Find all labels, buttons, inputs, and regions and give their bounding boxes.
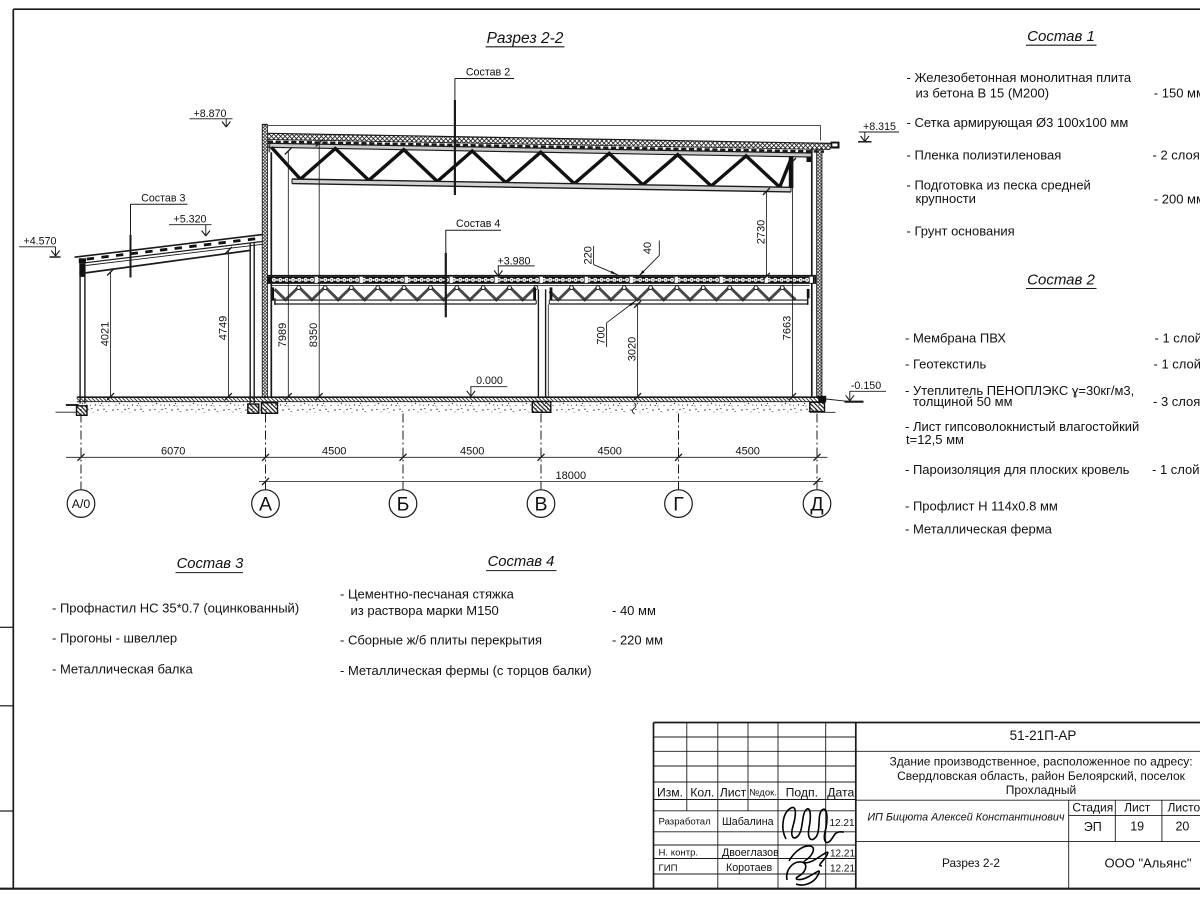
svg-text:Разработал: Разработал — [659, 817, 711, 828]
svg-text:ИП Бицюта Алексей Константинов: ИП Бицюта Алексей Константинович — [867, 812, 1065, 824]
svg-text:- Металлическая балка: - Металлическая балка — [52, 661, 193, 676]
svg-text:толщиной 50 мм: толщиной 50 мм — [913, 394, 1013, 409]
svg-text:- 1 слой: - 1 слой — [1155, 331, 1200, 346]
svg-text:- Профнастил НС 35*0.7 (оцинко: - Профнастил НС 35*0.7 (оцинкованный) — [52, 601, 299, 616]
svg-text:2730: 2730 — [755, 220, 767, 244]
svg-text:Подп.: Подп. — [786, 786, 818, 800]
svg-text:Лист: Лист — [1124, 801, 1151, 815]
svg-text:Состав 3: Состав 3 — [177, 556, 245, 572]
svg-text:18000: 18000 — [556, 470, 587, 482]
svg-text:4500: 4500 — [735, 446, 759, 458]
svg-text:20: 20 — [1175, 820, 1189, 834]
svg-text:t=12,5 мм: t=12,5 мм — [906, 432, 964, 447]
svg-text:- 1 слой: - 1 слой — [1152, 462, 1200, 477]
svg-text:Шабалина: Шабалина — [722, 816, 774, 828]
svg-text:- 2 слоя: - 2 слоя — [1153, 148, 1200, 163]
svg-text:Коротаев: Коротаев — [726, 862, 772, 874]
svg-text:Двоеглазов: Двоеглазов — [722, 847, 779, 859]
svg-text:Б: Б — [397, 494, 410, 516]
svg-text:Прохладный: Прохладный — [1006, 783, 1076, 797]
svg-text:Д: Д — [810, 494, 823, 516]
svg-text:- Металлическая ферма: - Металлическая ферма — [905, 521, 1053, 536]
svg-text:Здание производственное, распо: Здание производственное, расположенное п… — [889, 754, 1192, 768]
svg-text:7989: 7989 — [277, 323, 289, 347]
svg-text:Состав 2: Состав 2 — [466, 66, 510, 78]
svg-text:4500: 4500 — [322, 446, 346, 458]
svg-text:- Сборные ж/б плиты перекрытия: - Сборные ж/б плиты перекрытия — [340, 633, 542, 648]
svg-text:+4.570: +4.570 — [24, 236, 57, 248]
svg-text:+8.870: +8.870 — [194, 108, 227, 120]
svg-text:Состав 3: Состав 3 — [141, 193, 185, 205]
svg-text:- Пароизоляция для плоских кро: - Пароизоляция для плоских кровель — [905, 462, 1130, 477]
svg-text:- 150 мм: - 150 мм — [1154, 85, 1200, 100]
svg-text:40: 40 — [642, 242, 654, 254]
svg-text:Состав 4: Состав 4 — [456, 218, 500, 230]
svg-text:12.21: 12.21 — [830, 848, 855, 859]
svg-text:Изм.: Изм. — [657, 786, 683, 800]
svg-text:700: 700 — [595, 326, 607, 344]
svg-text:из бетона В 15 (М200): из бетона В 15 (М200) — [916, 86, 1050, 101]
svg-text:Дата: Дата — [827, 786, 854, 800]
svg-text:4021: 4021 — [100, 322, 112, 346]
svg-text:4500: 4500 — [460, 446, 484, 458]
svg-text:Лист: Лист — [720, 786, 747, 800]
svg-text:Состав 2: Состав 2 — [1027, 271, 1095, 288]
svg-text:- Металлическая фермы (с торцо: - Металлическая фермы (с торцов балки) — [340, 663, 592, 678]
svg-text:- Цементно-песчаная стяжка: - Цементно-песчаная стяжка — [340, 587, 515, 602]
svg-text:- 1 слой: - 1 слой — [1154, 357, 1200, 372]
svg-text:3020: 3020 — [626, 337, 638, 361]
svg-text:А/0: А/0 — [72, 497, 91, 511]
svg-text:12.21: 12.21 — [830, 818, 855, 829]
svg-text:крупности: крупности — [916, 191, 976, 206]
svg-text:А: А — [259, 494, 272, 516]
svg-text:Н. контр.: Н. контр. — [659, 848, 699, 859]
svg-text:- Прогоны - швеллер: - Прогоны - швеллер — [52, 631, 177, 646]
svg-text:- Сетка армирующая Ø3 100х100: - Сетка армирующая Ø3 100х100 мм — [907, 115, 1129, 130]
svg-text:Состав 4: Состав 4 — [488, 554, 555, 570]
svg-text:Состав 1: Состав 1 — [1027, 28, 1095, 45]
svg-text:220: 220 — [582, 246, 594, 264]
svg-text:- 40 мм: - 40 мм — [612, 603, 656, 618]
svg-text:-0.150: -0.150 — [851, 380, 881, 392]
svg-text:Разрез 2-2: Разрез 2-2 — [942, 856, 1000, 870]
svg-text:Листов: Листов — [1168, 801, 1200, 815]
svg-text:Свердловская область, район Бе: Свердловская область, район Белоярский, … — [897, 769, 1186, 783]
svg-text:Стадия: Стадия — [1072, 801, 1113, 815]
svg-text:- Железобетонная монолитная п: - Железобетонная монолитная плита — [907, 70, 1132, 85]
svg-text:51-21П-АР: 51-21П-АР — [1010, 728, 1077, 743]
svg-text:+5.320: +5.320 — [174, 214, 207, 226]
svg-text:из раствора марки М150: из раствора марки М150 — [351, 603, 499, 618]
svg-text:ЭП: ЭП — [1084, 820, 1102, 834]
svg-text:Г: Г — [673, 494, 684, 516]
svg-text:В: В — [534, 494, 547, 516]
svg-text:Разрез 2-2: Разрез 2-2 — [487, 30, 564, 47]
svg-text:Кол.: Кол. — [690, 786, 714, 800]
svg-text:- 3 слоя: - 3 слоя — [1153, 394, 1200, 409]
svg-text:- 200 мм: - 200 мм — [1154, 191, 1200, 206]
svg-text:0.000: 0.000 — [476, 375, 503, 387]
svg-text:- 220 мм: - 220 мм — [612, 633, 663, 648]
svg-text:- Пленка полиэтиленовая: - Пленка полиэтиленовая — [907, 148, 1062, 163]
svg-text:- Геотекстиль: - Геотекстиль — [905, 357, 986, 372]
svg-text:4749: 4749 — [217, 316, 229, 340]
svg-text:+8.315: +8.315 — [863, 121, 896, 133]
svg-text:№док.: №док. — [749, 787, 777, 798]
svg-text:ООО "Альянс": ООО "Альянс" — [1105, 856, 1192, 871]
svg-text:- Профлист Н 114х0.8 мм: - Профлист Н 114х0.8 мм — [905, 498, 1058, 513]
svg-text:4500: 4500 — [597, 446, 621, 458]
svg-text:6070: 6070 — [161, 446, 185, 458]
svg-text:12.21: 12.21 — [830, 863, 855, 874]
svg-text:19: 19 — [1130, 820, 1144, 834]
svg-text:- Мембрана ПВХ: - Мембрана ПВХ — [905, 331, 1006, 346]
svg-text:ГИП: ГИП — [659, 863, 678, 874]
svg-text:7663: 7663 — [781, 316, 793, 340]
svg-text:8350: 8350 — [308, 323, 320, 347]
svg-text:- Грунт основания: - Грунт основания — [907, 224, 1015, 239]
